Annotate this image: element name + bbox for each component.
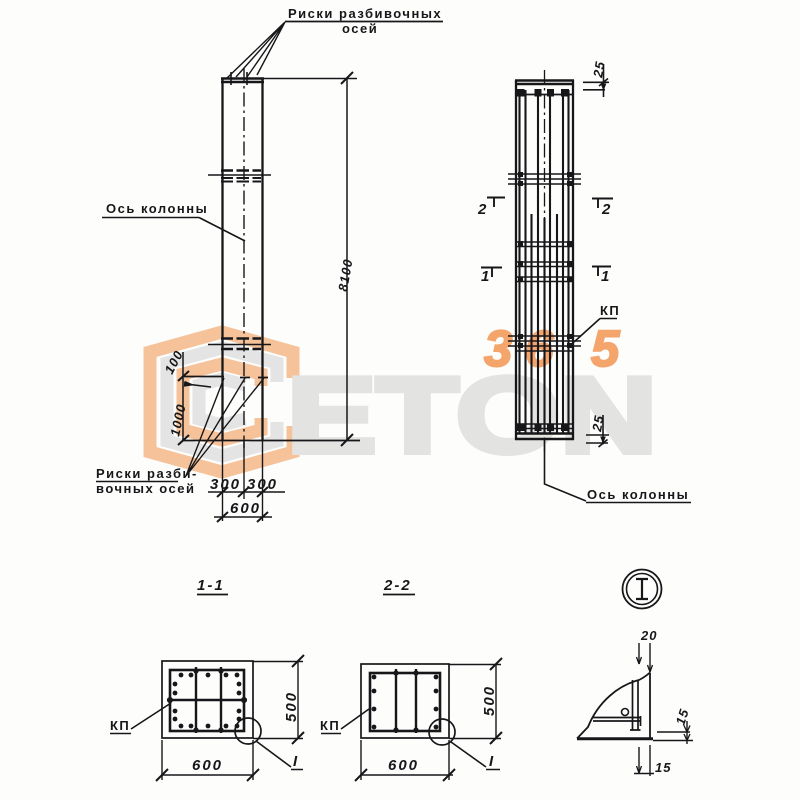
svg-text:300: 300 [247,476,278,493]
svg-text:I: I [489,753,495,770]
svg-text:1: 1 [481,268,491,285]
svg-text:осей: осей [342,21,378,36]
svg-text:1: 1 [601,268,611,285]
svg-text:5: 5 [591,320,620,377]
svg-text:600: 600 [192,757,223,774]
svg-text:500: 500 [283,691,300,722]
svg-text:25: 25 [589,414,607,434]
svg-text:300: 300 [210,476,241,493]
svg-text:3: 3 [484,320,512,377]
svg-text:Ось колонны: Ось колонны [106,201,208,216]
svg-text:Ось колонны: Ось колонны [587,487,689,502]
svg-text:25: 25 [590,60,608,80]
svg-text:15: 15 [673,707,692,727]
svg-text:2: 2 [477,201,488,218]
svg-text:15: 15 [655,760,671,775]
svg-text:600: 600 [388,757,419,774]
svg-text:I: I [293,753,299,770]
svg-text:Риски разби-: Риски разби- [96,466,198,481]
svg-text:2-2: 2-2 [383,577,412,594]
svg-text:500: 500 [481,685,498,716]
svg-text:20: 20 [640,628,657,643]
svg-text:Риски разбивочных: Риски разбивочных [288,6,442,21]
svg-text:КП: КП [110,718,130,733]
svg-text:вочных осей: вочных осей [96,481,196,496]
svg-text:8100: 8100 [335,257,355,292]
svg-text:КП: КП [320,718,340,733]
svg-text:КП: КП [600,303,620,318]
svg-text:2: 2 [601,201,612,218]
svg-text:1-1: 1-1 [197,577,225,594]
svg-text:600: 600 [230,500,261,517]
